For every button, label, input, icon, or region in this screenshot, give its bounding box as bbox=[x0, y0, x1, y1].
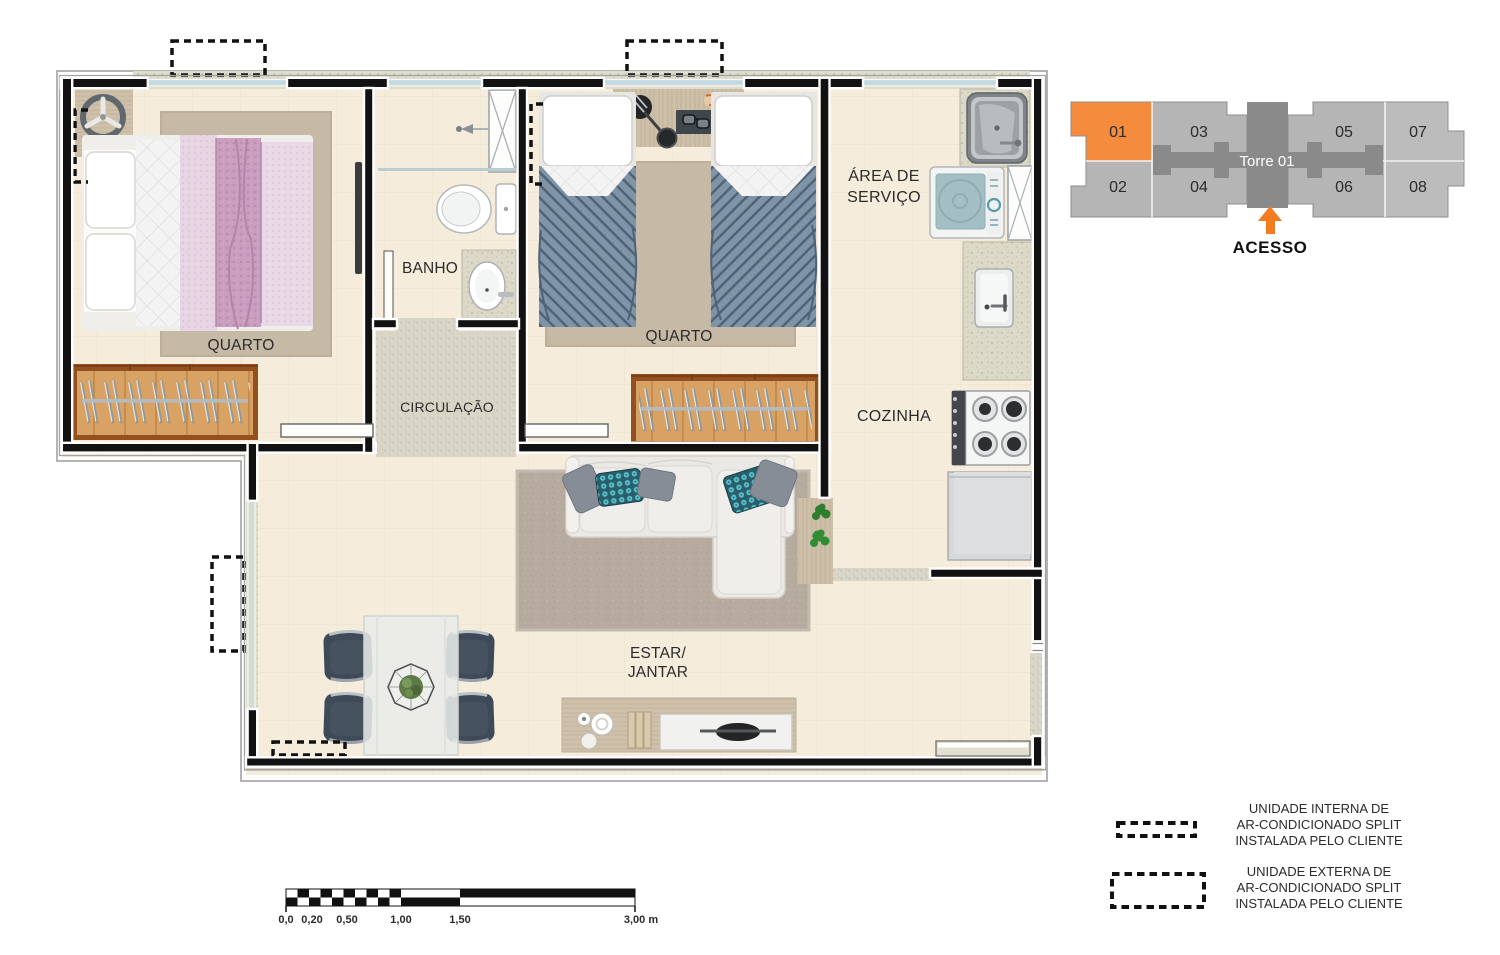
svg-text:SERVIÇO: SERVIÇO bbox=[847, 189, 921, 206]
svg-text:03: 03 bbox=[1190, 124, 1208, 141]
svg-text:08: 08 bbox=[1409, 179, 1427, 196]
svg-text:UNIDADE EXTERNA DE: UNIDADE EXTERNA DE bbox=[1247, 864, 1392, 879]
svg-text:AR-CONDICIONADO SPLIT: AR-CONDICIONADO SPLIT bbox=[1237, 817, 1402, 832]
svg-text:QUARTO: QUARTO bbox=[208, 337, 275, 354]
svg-text:AR-CONDICIONADO SPLIT: AR-CONDICIONADO SPLIT bbox=[1237, 880, 1402, 895]
svg-text:Torre 01: Torre 01 bbox=[1239, 153, 1294, 170]
svg-text:BANHO: BANHO bbox=[402, 260, 458, 277]
svg-text:0,50: 0,50 bbox=[336, 914, 357, 926]
svg-text:01: 01 bbox=[1109, 124, 1127, 141]
svg-text:06: 06 bbox=[1335, 179, 1353, 196]
svg-text:QUARTO: QUARTO bbox=[646, 328, 713, 345]
svg-text:INSTALADA PELO CLIENTE: INSTALADA PELO CLIENTE bbox=[1235, 896, 1403, 911]
svg-text:INSTALADA PELO CLIENTE: INSTALADA PELO CLIENTE bbox=[1235, 833, 1403, 848]
svg-text:ACESSO: ACESSO bbox=[1233, 238, 1308, 257]
svg-text:02: 02 bbox=[1109, 179, 1127, 196]
svg-text:JANTAR: JANTAR bbox=[628, 664, 688, 681]
svg-text:UNIDADE INTERNA DE: UNIDADE INTERNA DE bbox=[1249, 801, 1389, 816]
svg-text:1,00: 1,00 bbox=[390, 914, 411, 926]
svg-text:CIRCULAÇÃO: CIRCULAÇÃO bbox=[400, 399, 494, 415]
svg-text:1,50: 1,50 bbox=[449, 914, 470, 926]
svg-text:3,00 m: 3,00 m bbox=[624, 914, 658, 926]
svg-text:0,20: 0,20 bbox=[301, 914, 322, 926]
svg-text:0,0: 0,0 bbox=[278, 914, 293, 926]
svg-text:07: 07 bbox=[1409, 124, 1427, 141]
svg-text:COZINHA: COZINHA bbox=[857, 408, 931, 425]
svg-text:ESTAR/: ESTAR/ bbox=[630, 645, 687, 662]
svg-text:ÁREA DE: ÁREA DE bbox=[848, 166, 919, 185]
svg-text:04: 04 bbox=[1190, 179, 1208, 196]
svg-text:05: 05 bbox=[1335, 124, 1353, 141]
